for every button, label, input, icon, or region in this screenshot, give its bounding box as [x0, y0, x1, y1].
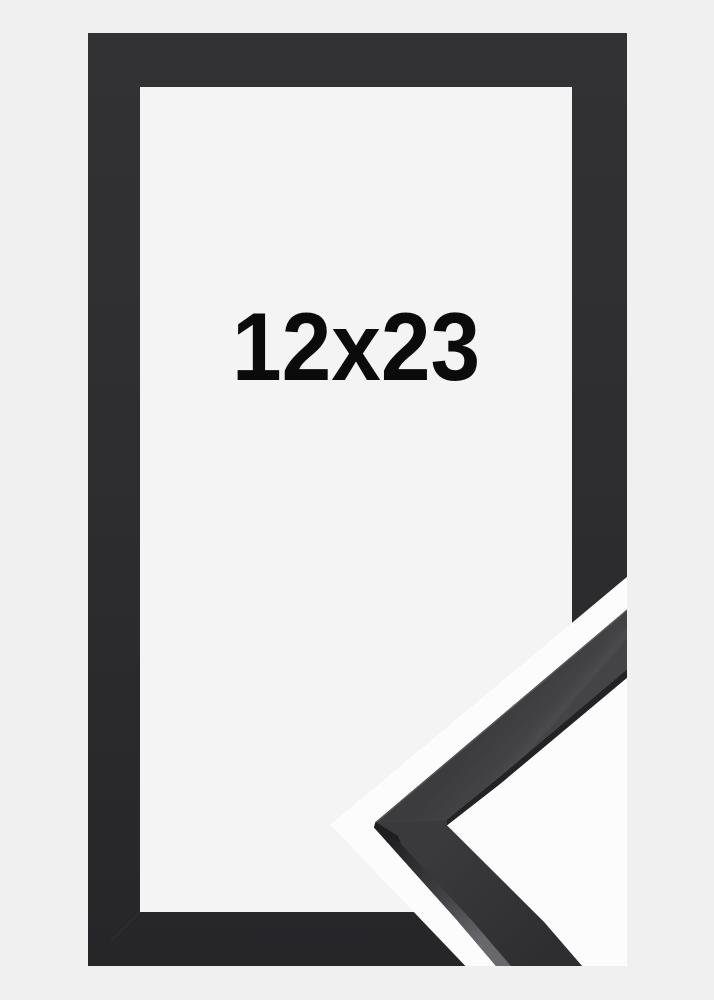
svg-text:12x23: 12x23	[232, 293, 480, 401]
